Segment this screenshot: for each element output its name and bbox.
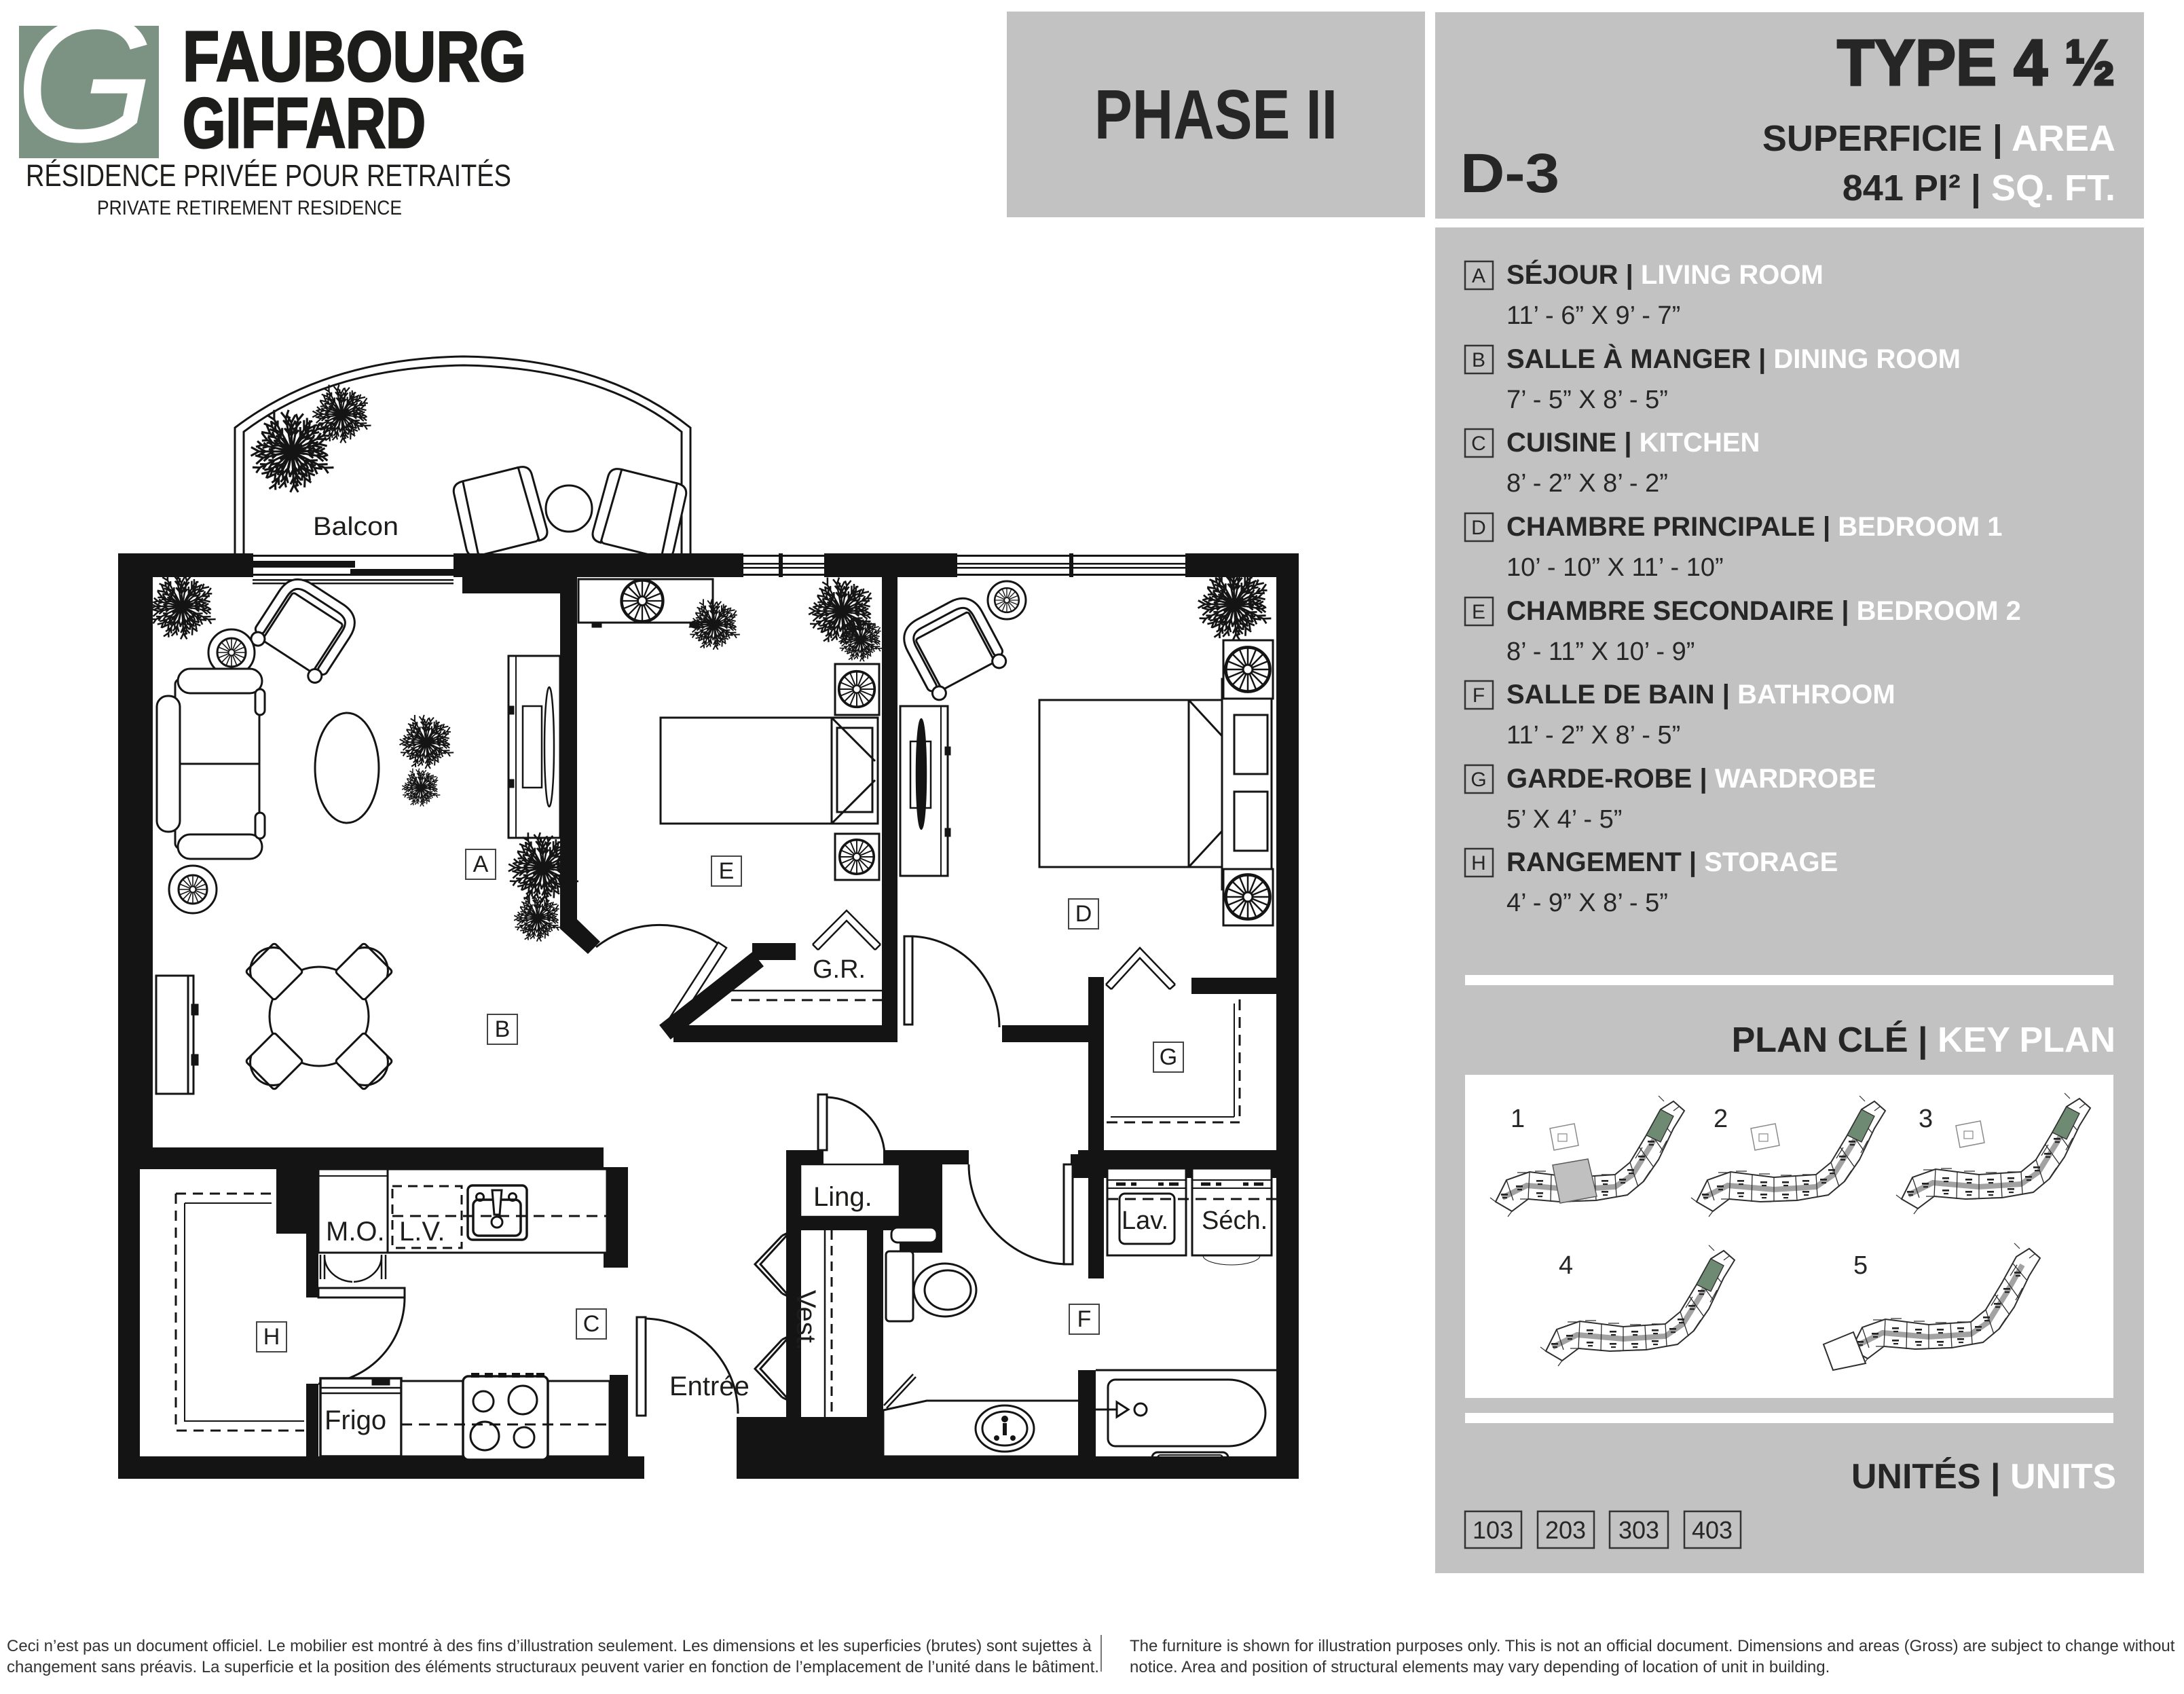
svg-text:Ling.: Ling. <box>813 1182 872 1212</box>
svg-text:PRIVATE RETIREMENT RESIDENCE: PRIVATE RETIREMENT RESIDENCE <box>97 197 402 219</box>
svg-text:Balcon: Balcon <box>313 513 399 541</box>
svg-text:F: F <box>1077 1306 1092 1332</box>
svg-text:8’ - 11” X 10’ - 9”: 8’ - 11” X 10’ - 9” <box>1506 638 1695 666</box>
svg-text:D: D <box>1075 901 1092 927</box>
svg-text:2: 2 <box>1714 1105 1728 1133</box>
svg-text:UNITÉS | UNITS: UNITÉS | UNITS <box>1851 1457 2116 1496</box>
svg-text:CHAMBRE SECONDAIRE | BEDROOM 2: CHAMBRE SECONDAIRE | BEDROOM 2 <box>1506 596 2021 626</box>
svg-text:A: A <box>1472 265 1485 287</box>
svg-text:D-3: D-3 <box>1460 143 1559 204</box>
svg-text:H: H <box>1471 852 1486 874</box>
svg-text:103: 103 <box>1473 1516 1513 1544</box>
svg-text:SALLE DE BAIN | BATHROOM: SALLE DE BAIN | BATHROOM <box>1506 680 1895 710</box>
svg-text:PLAN CLÉ | KEY PLAN: PLAN CLÉ | KEY PLAN <box>1732 1020 2115 1060</box>
svg-text:SUPERFICIE | AREA: SUPERFICIE | AREA <box>1762 118 2115 160</box>
svg-text:L.V.: L.V. <box>399 1217 445 1247</box>
svg-text:D: D <box>1471 517 1486 539</box>
svg-text:7’ - 5” X 8’ - 5”: 7’ - 5” X 8’ - 5” <box>1506 386 1668 414</box>
svg-text:G: G <box>1470 769 1486 791</box>
svg-text:G: G <box>15 0 155 180</box>
svg-text:Ceci n’est pas un document off: Ceci n’est pas un document officiel. Le … <box>7 1637 1092 1655</box>
svg-text:GIFFARD: GIFFARD <box>183 84 426 163</box>
svg-text:RANGEMENT | STORAGE: RANGEMENT | STORAGE <box>1506 847 1838 877</box>
svg-text:SÉJOUR | LIVING ROOM: SÉJOUR | LIVING ROOM <box>1506 259 1824 290</box>
svg-text:10’ - 10” X 11’ - 10”: 10’ - 10” X 11’ - 10” <box>1506 553 1724 582</box>
svg-text:notice. Area and position of s: notice. Area and position of structural … <box>1130 1658 1830 1676</box>
svg-text:8’ - 2” X 8’ - 2”: 8’ - 2” X 8’ - 2” <box>1506 469 1668 498</box>
svg-text:F: F <box>1473 684 1485 707</box>
svg-text:RÉSIDENCE PRIVÉE POUR RETRAITÉ: RÉSIDENCE PRIVÉE POUR RETRAITÉS <box>26 158 511 193</box>
svg-text:PHASE II: PHASE II <box>1094 75 1337 153</box>
svg-text:841 PI² | SQ. FT.: 841 PI² | SQ. FT. <box>1843 168 2115 209</box>
svg-text:Frigo: Frigo <box>325 1405 386 1435</box>
svg-text:G: G <box>1160 1044 1177 1070</box>
svg-text:C: C <box>583 1311 600 1337</box>
svg-text:B: B <box>495 1016 511 1042</box>
svg-text:Séch.: Séch. <box>1202 1207 1267 1235</box>
svg-text:CHAMBRE PRINCIPALE | BEDROOM 1: CHAMBRE PRINCIPALE | BEDROOM 1 <box>1506 512 2003 542</box>
svg-text:5: 5 <box>1853 1251 1868 1280</box>
svg-text:Vest.: Vest. <box>791 1290 821 1350</box>
svg-text:11’ - 2” X 8’ - 5”: 11’ - 2” X 8’ - 5” <box>1506 721 1680 750</box>
svg-text:11’ - 6” X 9’ - 7”: 11’ - 6” X 9’ - 7” <box>1506 301 1680 330</box>
svg-text:303: 303 <box>1618 1516 1659 1544</box>
svg-text:4’ - 9” X 8’ - 5”: 4’ - 9” X 8’ - 5” <box>1506 889 1668 917</box>
svg-text:3: 3 <box>1919 1105 1933 1133</box>
svg-text:H: H <box>263 1324 280 1350</box>
svg-text:GARDE-ROBE | WARDROBE: GARDE-ROBE | WARDROBE <box>1506 764 1876 794</box>
svg-text:A: A <box>473 851 489 877</box>
svg-text:B: B <box>1472 349 1485 371</box>
svg-text:TYPE 4 ½: TYPE 4 ½ <box>1837 26 2115 99</box>
svg-text:1: 1 <box>1511 1105 1525 1133</box>
svg-text:changement sans préavis. La su: changement sans préavis. La superficie e… <box>7 1658 1099 1676</box>
svg-text:C: C <box>1471 432 1486 455</box>
svg-text:E: E <box>1472 601 1485 623</box>
svg-text:M.O.: M.O. <box>326 1217 385 1247</box>
svg-text:G.R.: G.R. <box>813 955 866 984</box>
svg-text:E: E <box>719 858 735 884</box>
svg-text:Lav.: Lav. <box>1122 1207 1168 1235</box>
svg-text:SALLE À MANGER | DINING ROOM: SALLE À MANGER | DINING ROOM <box>1506 344 1961 374</box>
svg-text:403: 403 <box>1692 1516 1733 1544</box>
svg-text:CUISINE | KITCHEN: CUISINE | KITCHEN <box>1506 428 1760 458</box>
svg-text:4: 4 <box>1559 1251 1573 1280</box>
svg-text:203: 203 <box>1545 1516 1586 1544</box>
svg-text:The furniture is shown for ill: The furniture is shown for illustration … <box>1130 1637 2175 1655</box>
svg-text:Entrée: Entrée <box>669 1371 749 1401</box>
svg-text:5’ X 4’ - 5”: 5’ X 4’ - 5” <box>1506 805 1622 834</box>
